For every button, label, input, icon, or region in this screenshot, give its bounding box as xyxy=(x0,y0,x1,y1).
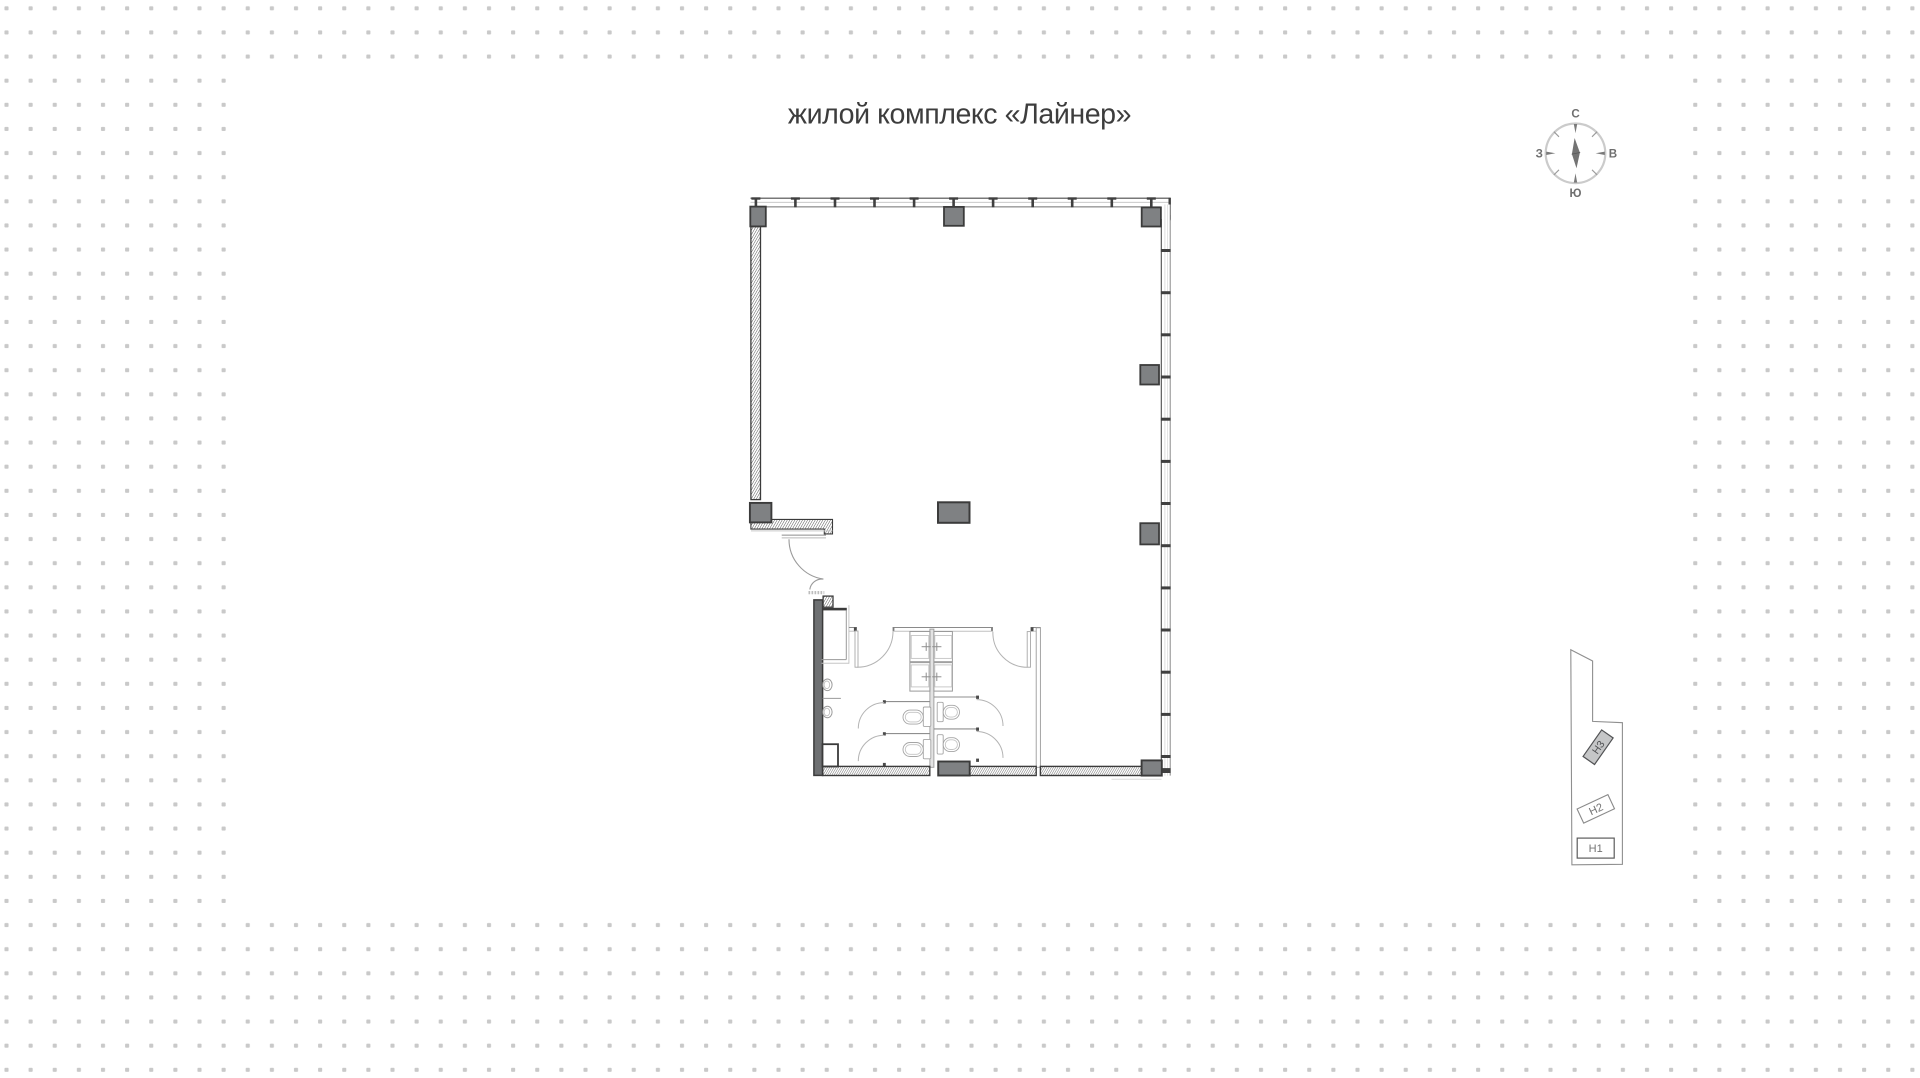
svg-text:Н1: Н1 xyxy=(1589,843,1603,855)
svg-text:З: З xyxy=(1536,147,1543,160)
svg-text:В: В xyxy=(1609,147,1617,160)
svg-text:жилой комплекс «Лайнер»: жилой комплекс «Лайнер» xyxy=(788,99,1131,131)
svg-text:Ю: Ю xyxy=(1570,187,1582,200)
svg-text:С: С xyxy=(1571,108,1580,121)
